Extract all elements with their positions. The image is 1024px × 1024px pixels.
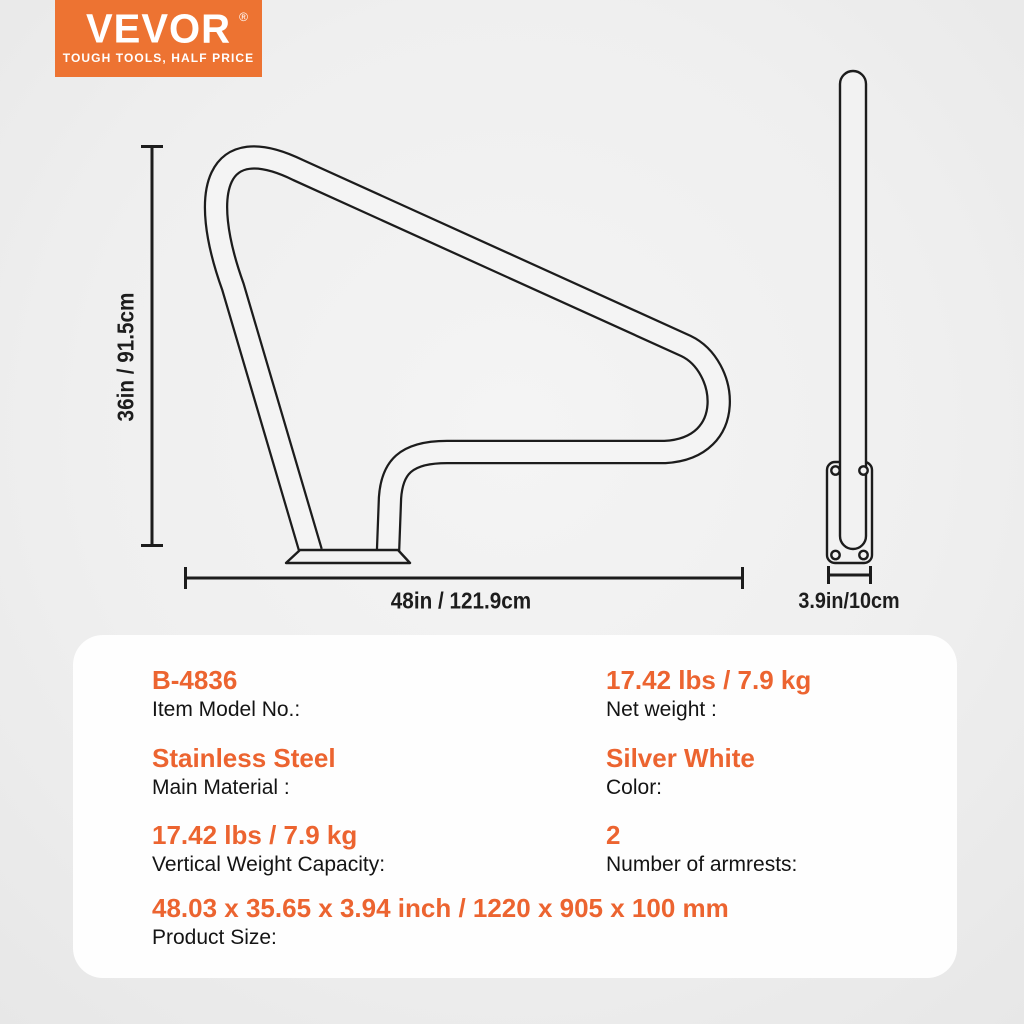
height-dimension-line: [141, 147, 163, 546]
spec-value: B-4836: [152, 665, 300, 695]
spec-value: Silver White: [606, 743, 755, 773]
spec-item-product-size: 48.03 x 35.65 x 3.94 inch / 1220 x 905 x…: [152, 893, 729, 950]
spec-label: Main Material :: [152, 776, 336, 800]
spec-value: 48.03 x 35.65 x 3.94 inch / 1220 x 905 x…: [152, 893, 729, 923]
spec-item-armrests: 2 Number of armrests:: [606, 820, 797, 877]
width-dimension-line: [186, 567, 743, 589]
height-dimension-label: 36in / 91.5cm: [113, 285, 140, 428]
spec-value: 2: [606, 820, 797, 850]
spec-item-net-weight: 17.42 lbs / 7.9 kg Net weight :: [606, 665, 811, 722]
handrail-base-foot: [286, 550, 410, 563]
spec-label: Number of armrests:: [606, 853, 797, 877]
screw-hole: [859, 466, 867, 474]
specification-card: B-4836 Item Model No.: 17.42 lbs / 7.9 k…: [73, 635, 957, 978]
spec-value: 17.42 lbs / 7.9 kg: [152, 820, 385, 850]
screw-hole: [859, 551, 867, 559]
spec-item-color: Silver White Color:: [606, 743, 755, 800]
spec-value: Stainless Steel: [152, 743, 336, 773]
handrail-front-view-drawing: [216, 157, 719, 563]
handrail-side-view-drawing: [827, 71, 872, 563]
spec-label: Product Size:: [152, 926, 729, 950]
screw-hole: [831, 466, 839, 474]
side-width-dimension-label: 3.9in/10cm: [793, 588, 906, 614]
side-width-dimension-line: [829, 566, 871, 584]
spec-item-material: Stainless Steel Main Material :: [152, 743, 336, 800]
spec-label: Net weight :: [606, 698, 811, 722]
width-dimension-label: 48in / 121.9cm: [383, 588, 539, 615]
side-view-post: [840, 71, 866, 549]
spec-value: 17.42 lbs / 7.9 kg: [606, 665, 811, 695]
spec-label: Vertical Weight Capacity:: [152, 853, 385, 877]
screw-hole: [831, 551, 839, 559]
spec-label: Color:: [606, 776, 755, 800]
spec-item-weight-capacity: 17.42 lbs / 7.9 kg Vertical Weight Capac…: [152, 820, 385, 877]
spec-item-model: B-4836 Item Model No.:: [152, 665, 300, 722]
spec-label: Item Model No.:: [152, 698, 300, 722]
product-spec-infographic: VEVOR ® TOUGH TOOLS, HALF PRICE: [0, 0, 1024, 1024]
